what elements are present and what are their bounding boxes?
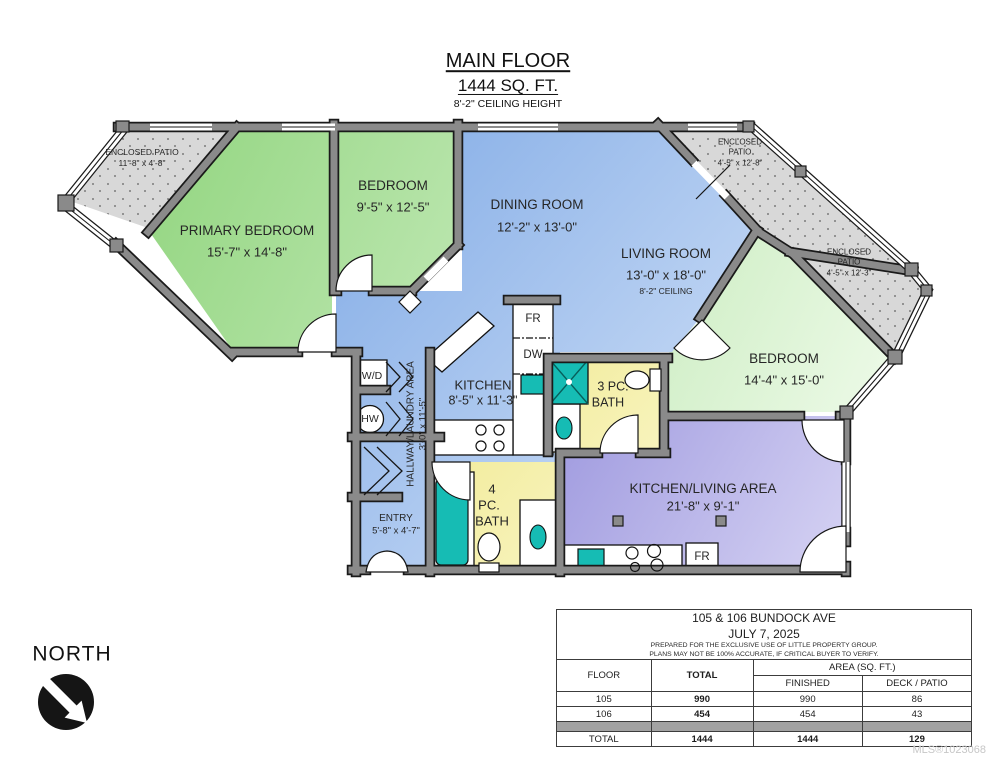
room-dims-living: 13'-0" x 18'-0" — [626, 267, 706, 282]
row-total: 454 — [651, 707, 753, 722]
room-label-bedroom-top: BEDROOM — [358, 178, 428, 194]
table-row: 106 454 454 43 — [557, 707, 972, 722]
hot-water-label: HW — [361, 413, 379, 425]
room-dims-primary-bedroom: 15'-7" x 14'-8" — [207, 244, 287, 259]
room-label-entry: ENTRY — [379, 513, 413, 525]
room-label-living: LIVING ROOM — [621, 246, 711, 262]
room-dims-patio-nw: 11'-8" x 4'-8" — [119, 158, 166, 168]
room-dims-bedroom-right: 14'-4" x 15'-0" — [744, 372, 824, 387]
table-row: 105 990 990 86 — [557, 692, 972, 707]
toilet-icon-bath4 — [478, 533, 500, 561]
room-label-patio-e-1: ENCLOSED — [827, 247, 871, 256]
page-title: MAIN FLOOR — [446, 50, 570, 74]
room-label-patio-ne-1: ENCLOSED — [718, 137, 762, 146]
room-dims-patio-ne: 4'-5" x 12'-8" — [718, 158, 763, 167]
room-label-bath4-1: 4 — [488, 481, 495, 496]
total-floor: TOTAL — [557, 732, 652, 747]
area-summary-table: 105 & 106 BUNDOCK AVE JULY 7, 2025 PREPA… — [556, 609, 972, 747]
col-header-deck: DECK / PATIO — [862, 676, 971, 692]
toilet-base-icon — [479, 563, 499, 572]
dishwasher-label: DW — [523, 349, 542, 363]
total-total: 1444 — [651, 732, 753, 747]
row-floor: 106 — [557, 707, 652, 722]
col-header-floor: FLOOR — [557, 660, 652, 692]
room-label-primary-bedroom: PRIMARY BEDROOM — [180, 223, 315, 239]
ceiling-height-note: 8'-2" CEILING HEIGHT — [454, 98, 562, 110]
total-finished: 1444 — [753, 732, 862, 747]
room-label-bath4-2: PC. — [478, 497, 500, 512]
room-label-hallway: HALLWAY/LAUNDRY AREA 3'-0" x 11'-5" — [406, 361, 429, 487]
room-note-living-ceiling: 8'-2" CEILING — [639, 286, 692, 296]
column-post — [716, 516, 726, 526]
north-label: NORTH — [32, 643, 111, 668]
table-total-row: TOTAL 1444 1444 129 — [557, 732, 972, 747]
col-header-total: TOTAL — [651, 660, 753, 692]
hallway-name: HALLWAY/LAUNDRY AREA — [406, 361, 418, 487]
table-address: 105 & 106 BUNDOCK AVE — [557, 610, 972, 627]
kitchen-sink-icon — [521, 375, 545, 394]
room-label-bath4-3: BATH — [475, 513, 509, 528]
row-total: 990 — [651, 692, 753, 707]
room-label-patio-ne-2: PATIO — [729, 147, 752, 156]
row-deck: 43 — [862, 707, 971, 722]
table-date: JULY 7, 2025 — [557, 626, 972, 641]
column-post — [613, 516, 623, 526]
room-label-bedroom-right: BEDROOM — [749, 351, 819, 367]
row-finished: 454 — [753, 707, 862, 722]
room-dims-bedroom-top: 9'-5" x 12'-5" — [357, 199, 430, 214]
room-dims-kitchen-living: 21'-8" x 9'-1" — [667, 498, 740, 513]
room-dims-kitchen: 8'-5" x 11'-3" — [448, 394, 517, 409]
room-label-kitchen-living: KITCHEN/LIVING AREA — [629, 481, 776, 497]
page-subtitle-sqft: 1444 SQ. FT. — [458, 76, 558, 96]
room-dims-entry: 5'-8" x 4'-7" — [372, 525, 420, 536]
room-label-bath3-1: 3 PC. — [597, 380, 628, 395]
room-label-patio-nw: ENCLOSED PATIO — [105, 147, 178, 157]
toilet-tank-icon — [650, 369, 661, 391]
bath4-sink-icon — [530, 525, 546, 549]
bath3-sink-icon — [556, 417, 572, 439]
hallway-dims: 3'-0" x 11'-5" — [417, 361, 428, 487]
fridge-label-suite: FR — [694, 551, 709, 565]
room-dims-dining: 12'-2" x 13'-0" — [497, 219, 577, 234]
col-header-area: AREA (SQ. FT.) — [753, 660, 971, 676]
table-note-2: PLANS MAY NOT BE 100% ACCURATE, IF CRITI… — [557, 650, 972, 660]
room-label-kitchen: KITCHEN — [454, 377, 511, 392]
table-note-1: PREPARED FOR THE EXCLUSIVE USE OF LITTLE… — [557, 641, 972, 650]
row-finished: 990 — [753, 692, 862, 707]
room-label-dining: DINING ROOM — [491, 197, 584, 213]
north-arrow-icon — [38, 674, 94, 730]
col-header-finished: FINISHED — [753, 676, 862, 692]
room-label-bath3-2: BATH — [592, 396, 624, 411]
floor-plan-page: MAIN FLOOR 1444 SQ. FT. 8'-2" CEILING HE… — [0, 0, 994, 768]
row-deck: 86 — [862, 692, 971, 707]
table-spacer-row — [557, 722, 972, 732]
fridge-label-kitchen: FR — [525, 313, 540, 327]
room-dims-patio-e: 4'-5" x 12'-3" — [827, 268, 872, 277]
shower-drain-icon — [566, 379, 572, 385]
mls-watermark: MLS®1023068 — [912, 744, 986, 756]
row-floor: 105 — [557, 692, 652, 707]
room-label-patio-e-2: PATIO — [838, 257, 861, 266]
washer-dryer-label: W/D — [362, 370, 382, 382]
